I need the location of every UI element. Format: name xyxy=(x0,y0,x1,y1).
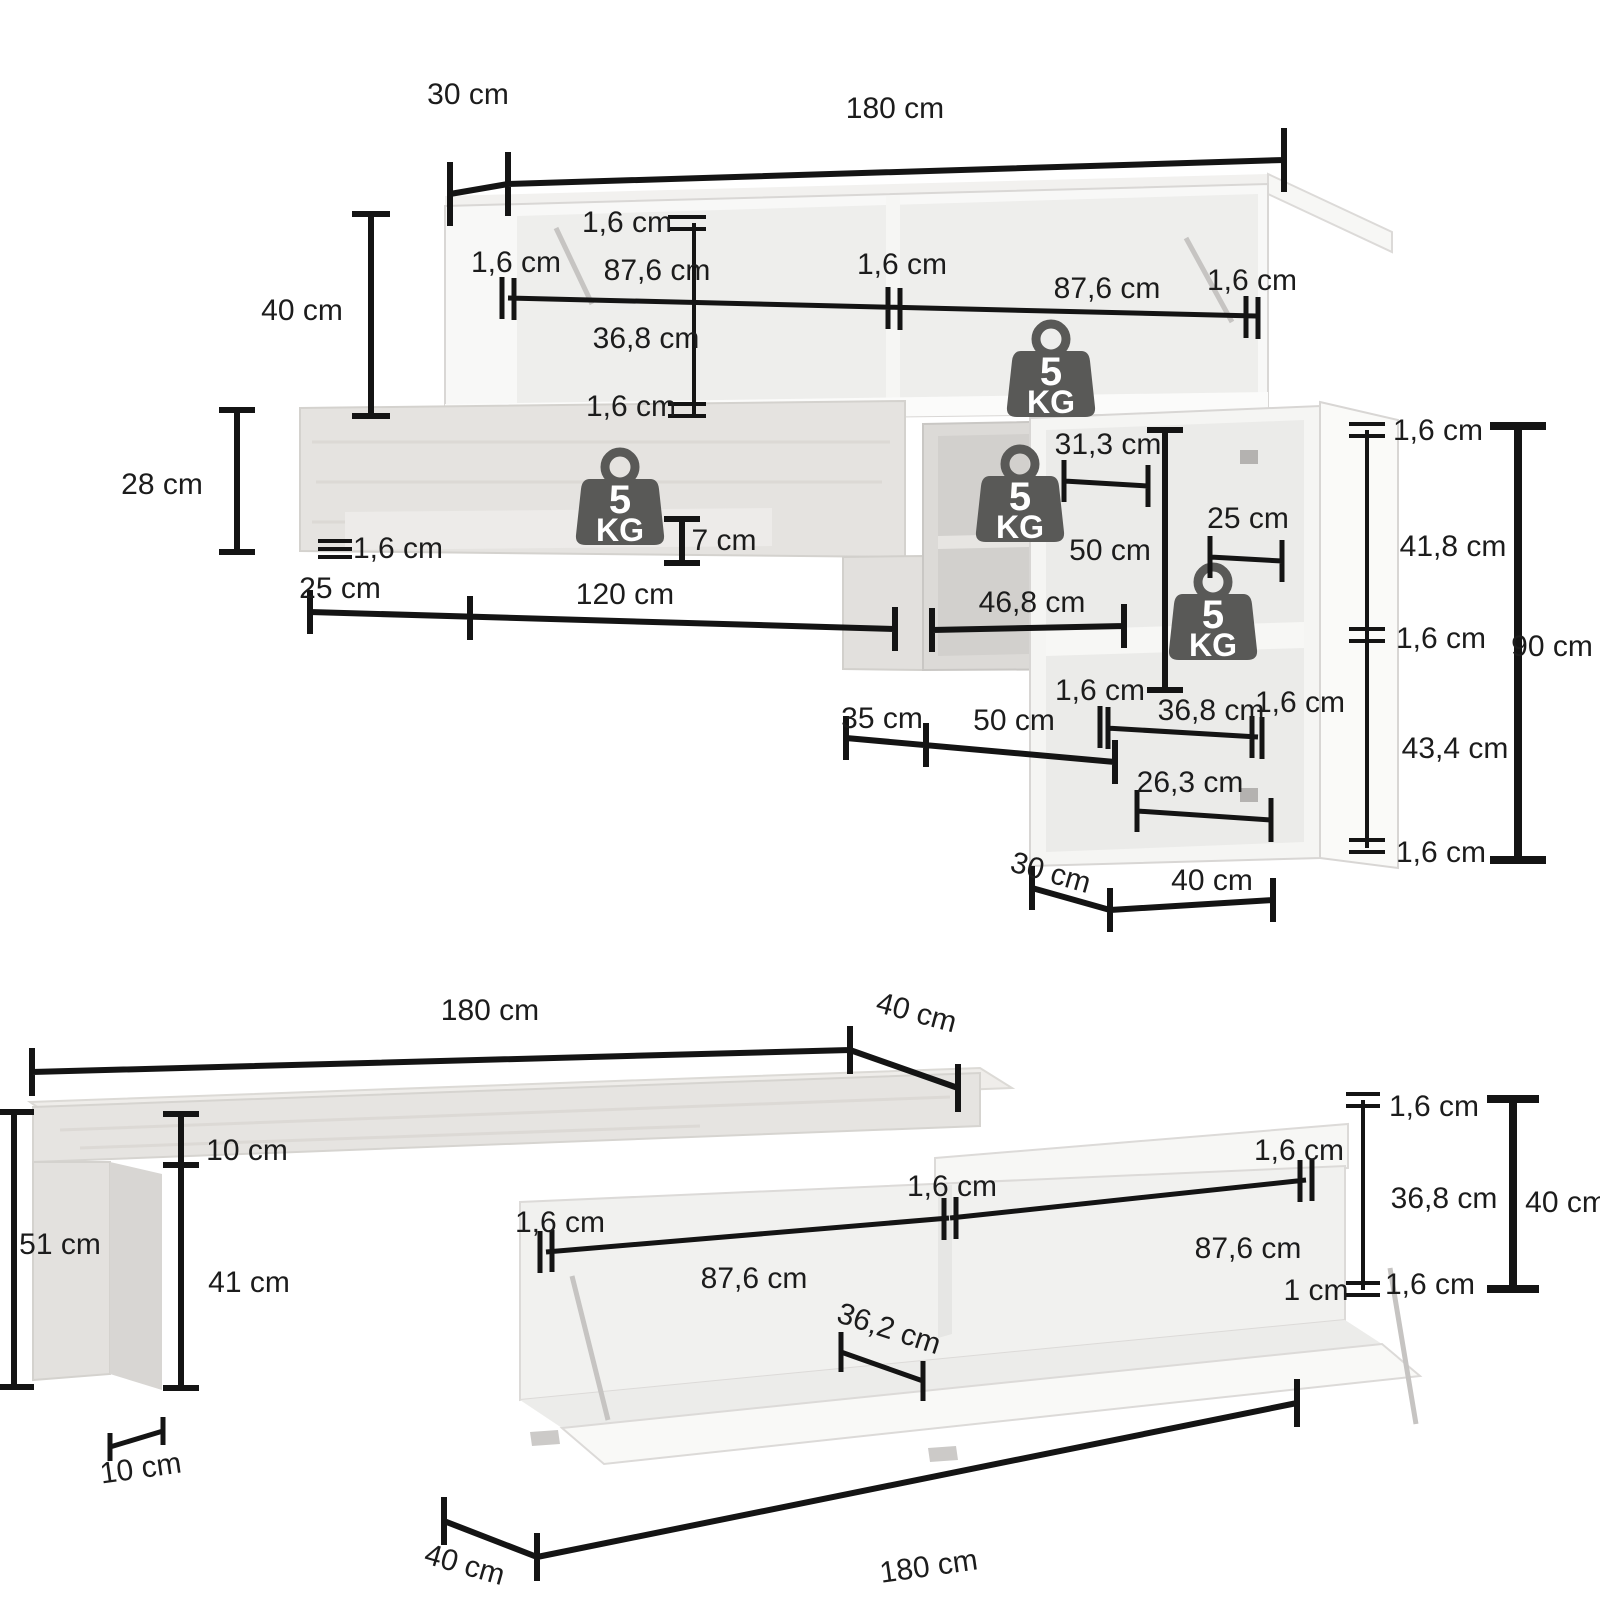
weight-unit: KG xyxy=(996,509,1044,545)
weight-unit: KG xyxy=(1189,627,1237,663)
hinge-icon xyxy=(1240,450,1258,464)
dim-label-right-lower-inner: 43,4 cm xyxy=(1402,732,1509,765)
dim-label-b-thickness: 1,6 cm xyxy=(1389,1090,1479,1123)
dim-label-compartment-width: 87,6 cm xyxy=(604,254,711,287)
dim-label-right-total-height: 90 cm xyxy=(1511,630,1593,663)
dim-label-b-depth-bottom: 40 cm xyxy=(421,1538,509,1592)
dim-label-right-upper-inner: 41,8 cm xyxy=(1400,530,1507,563)
dim-label-compartment-width: 87,6 cm xyxy=(1054,272,1161,305)
dim-label-b-compartment-width: 87,6 cm xyxy=(1195,1232,1302,1265)
dim-label-thickness: 1,6 cm xyxy=(471,246,561,279)
dim-b-cabinet-height: 40 cm xyxy=(1487,1099,1600,1289)
cabinet-foot xyxy=(928,1446,958,1462)
dim-label-right-width: 40 cm xyxy=(1171,864,1253,897)
dim-label-base-gap: 1 cm xyxy=(1283,1274,1348,1307)
weight-unit: KG xyxy=(1027,384,1075,420)
dim-label-thickness: 1,6 cm xyxy=(586,390,676,423)
dim-label-thickness: 1,6 cm xyxy=(582,206,672,239)
dim-label-b-compartment-width: 87,6 cm xyxy=(701,1262,808,1295)
dim-label-upper-height: 40 cm xyxy=(261,294,343,327)
dim-label-b-width-bottom: 180 cm xyxy=(878,1543,980,1589)
dim-label-b-thickness: 1,6 cm xyxy=(907,1170,997,1203)
dim-label-thickness: 1,6 cm xyxy=(1207,264,1297,297)
dim-label-door-shelf-width: 26,3 cm xyxy=(1137,766,1244,799)
dim-upper-height: 40 cm xyxy=(261,214,390,416)
dim-label-b-inner-height: 36,8 cm xyxy=(1391,1182,1498,1215)
dim-label-offset-35: 35 cm xyxy=(841,702,923,735)
dim-label-thickness: 1,6 cm xyxy=(1255,686,1345,719)
bench-leg-side xyxy=(110,1162,162,1390)
dim-b-beam-and-clearance: 10 cm 41 cm xyxy=(163,1114,290,1388)
dim-label-depth-top: 30 cm xyxy=(427,78,509,111)
dim-label-beam-thickness: 10 cm xyxy=(206,1134,288,1167)
dim-label-shelf-lip: 7 cm xyxy=(691,524,756,557)
dim-label-mid-inner-width-full: 46,8 cm xyxy=(979,586,1086,619)
dim-shelf-offsets: 25 cm 120 cm xyxy=(299,572,895,651)
cabinet-foot xyxy=(530,1430,560,1446)
dim-label-mid-height: 50 cm xyxy=(1069,534,1151,567)
dim-label-thickness: 1,6 cm xyxy=(1396,836,1486,869)
dim-label-door-inner-width: 36,8 cm xyxy=(1158,694,1265,727)
dim-label-thickness: 1,6 cm xyxy=(1396,622,1486,655)
dim-label-width-total: 180 cm xyxy=(846,92,944,125)
bench-leg-front xyxy=(33,1162,110,1380)
dim-shelf-height: 28 cm xyxy=(121,410,255,552)
dim-label-offset-50: 50 cm xyxy=(973,704,1055,737)
dim-label-b-thickness: 1,6 cm xyxy=(515,1206,605,1239)
dim-label-thickness: 1,6 cm xyxy=(1393,414,1483,447)
dim-label-bench-height: 51 cm xyxy=(19,1228,101,1261)
dim-b-leg-depth: 10 cm xyxy=(98,1417,184,1491)
dim-label-leg-clearance: 41 cm xyxy=(208,1266,290,1299)
dim-label-b-thickness: 1,6 cm xyxy=(1254,1134,1344,1167)
dim-label-b-cabinet-height: 40 cm xyxy=(1525,1186,1600,1219)
dim-label-shelf-height: 28 cm xyxy=(121,468,203,501)
dim-label-offset-left: 25 cm xyxy=(299,572,381,605)
weight-unit: KG xyxy=(596,512,644,548)
diagram-canvas: 5 KG 5 KG 5 KG 5 KG 30 cm 180 cm 40 cm 2… xyxy=(0,0,1600,1600)
furniture-dimension-diagram: 5 KG 5 KG 5 KG 5 KG 30 cm 180 cm 40 cm 2… xyxy=(0,0,1600,1600)
right-cabinet-open-door xyxy=(1320,402,1398,868)
dim-label-thickness: 1,6 cm xyxy=(1055,674,1145,707)
dim-label-shelf-width: 120 cm xyxy=(576,578,674,611)
dim-label-thickness: 1,6 cm xyxy=(353,532,443,565)
dim-label-inner-height: 36,8 cm xyxy=(593,322,700,355)
dim-label-mid-inner-width: 31,3 cm xyxy=(1055,428,1162,461)
dim-right-total-height: 90 cm xyxy=(1490,426,1593,860)
dim-label-b-thickness: 1,6 cm xyxy=(1385,1268,1475,1301)
under-box xyxy=(843,556,923,670)
dim-label-b-depth-top: 40 cm xyxy=(873,986,960,1039)
dim-label-thickness: 1,6 cm xyxy=(857,248,947,281)
dim-label-right-shelf-width: 25 cm xyxy=(1207,502,1289,535)
dim-label-b-width-total: 180 cm xyxy=(441,994,539,1027)
